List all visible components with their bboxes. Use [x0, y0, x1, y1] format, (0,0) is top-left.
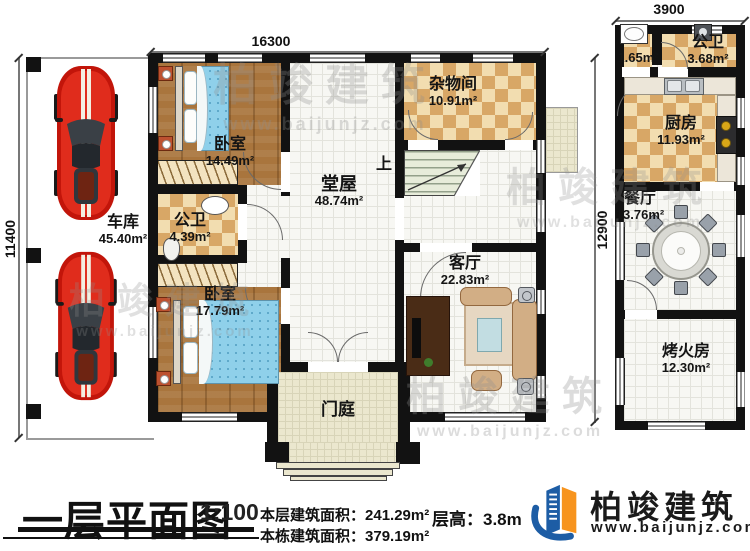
dining-chair: [674, 205, 688, 219]
garage-boundary: [26, 57, 153, 59]
column: [26, 57, 41, 72]
nightstand: [158, 136, 173, 151]
room-name: 杂物间: [408, 76, 498, 94]
room-area: 3.68m²: [677, 52, 739, 67]
room-label-fire-room: 烤火房 12.30m²: [643, 343, 729, 375]
floor-height-value: 3.8m: [483, 510, 522, 529]
room-area: 4.39m²: [158, 230, 222, 245]
dining-chair: [674, 281, 688, 295]
window: [736, 372, 745, 407]
room-name: 烤火房: [643, 343, 729, 361]
room-label-bath-main: 公卫 4.39m²: [158, 212, 222, 244]
room-name: 门庭: [308, 400, 368, 419]
dimension-left: 11400: [2, 204, 18, 274]
dimension-top-main: 16300: [231, 33, 311, 49]
title-underline-thin: [3, 537, 259, 539]
room-name: 堂屋: [301, 174, 377, 194]
column: [26, 404, 41, 419]
window: [736, 98, 745, 128]
room-name: 车库: [92, 214, 154, 232]
room-area: 45.40m²: [92, 232, 154, 247]
room-name: 客厅: [428, 255, 502, 273]
window: [218, 53, 262, 63]
floor-height-label: 层高：: [432, 510, 483, 529]
window: [310, 53, 365, 63]
window: [736, 157, 745, 185]
window: [648, 421, 705, 430]
sofa-main: [512, 299, 537, 381]
wall: [148, 185, 247, 194]
porch-step: [276, 462, 400, 469]
nightstand: [156, 371, 171, 386]
car-bottom: [54, 250, 118, 402]
tv: [412, 318, 421, 358]
room-name: 公卫: [677, 34, 739, 52]
brand-website: www.baijunjz.com: [591, 519, 750, 536]
coffee-table: [477, 318, 502, 352]
sofa-seat: [471, 370, 502, 391]
window: [536, 140, 546, 173]
room-area: 12.30m²: [643, 361, 729, 376]
bed-headboard: [175, 66, 183, 151]
building-area-line: 本栋建筑面积：379.19m²: [260, 525, 429, 546]
watermark-url: www.baijunjz.com: [370, 422, 650, 442]
dimension-line: [615, 20, 745, 22]
stairs-direction-arrow: [404, 150, 480, 196]
window: [182, 412, 237, 422]
room-label-bedroom2: 卧室 17.79m²: [186, 286, 254, 318]
kitchen-sink-basin: [667, 80, 682, 92]
dining-chair: [712, 243, 726, 257]
wall: [148, 255, 247, 263]
stove-burner: [721, 121, 731, 131]
window: [445, 412, 525, 422]
dimension-line: [150, 51, 545, 53]
dining-table-center: [677, 247, 685, 255]
porch-step: [283, 469, 393, 476]
floor-area-value: 241.29m²: [365, 507, 429, 524]
stove-burner: [721, 138, 731, 148]
door-opening: [408, 140, 438, 150]
porch-post: [396, 442, 420, 464]
porch-post: [265, 442, 289, 462]
room-name: 卧室: [196, 136, 264, 154]
window: [148, 307, 158, 358]
room-label-porch: 门庭: [308, 400, 368, 419]
room-area: 17.79m²: [186, 304, 254, 319]
column: [26, 248, 41, 263]
wall: [536, 53, 546, 422]
room-name: 卧室: [186, 286, 254, 304]
window: [736, 215, 745, 257]
room-label-bedroom1: 卧室 14.49m²: [196, 136, 264, 168]
room-area: 22.83m²: [428, 273, 502, 288]
end-table: [517, 378, 534, 395]
room-name: 餐厅: [604, 190, 676, 208]
window: [148, 87, 158, 133]
room-label-dining: 餐厅 13.76m²: [604, 190, 676, 222]
dimension-top-right: 3900: [634, 1, 704, 17]
window: [615, 222, 625, 280]
nightstand: [156, 297, 171, 312]
room-label-hall: 堂屋 48.74m²: [301, 174, 377, 209]
room-label-living: 客厅 22.83m²: [428, 255, 502, 287]
bed-headboard: [173, 300, 181, 384]
floor-area-line: 本层建筑面积：241.29m²: [260, 504, 429, 525]
room-area: 1.65m²: [610, 51, 666, 66]
room-area: 11.93m²: [640, 133, 722, 148]
building-area-label: 本栋建筑面积：: [260, 528, 365, 545]
room-name: 厨房: [640, 115, 722, 133]
porch-floor: [289, 442, 396, 462]
window: [536, 200, 546, 232]
door-opening: [505, 140, 533, 150]
title-underline-thick: [18, 527, 254, 532]
car-top: [54, 64, 118, 222]
room-area: 48.74m²: [301, 194, 377, 209]
floor-area-label: 本层建筑面积：: [260, 507, 365, 524]
window: [411, 53, 440, 63]
sink: [624, 27, 644, 41]
bedroom2-wardrobe: [157, 263, 238, 287]
window: [536, 376, 546, 398]
kitchen-sink-basin: [685, 80, 700, 92]
room-area: 13.76m²: [604, 208, 676, 223]
door-opening: [281, 152, 290, 192]
room-label-kitchen: 厨房 11.93m²: [640, 115, 722, 147]
room-label-storage: 杂物间 10.91m²: [408, 76, 498, 108]
room-label-washroom: 1.65m²: [610, 51, 666, 66]
window: [163, 53, 205, 63]
dimension-line: [18, 57, 20, 438]
room-area: 10.91m²: [408, 94, 498, 109]
door-opening: [308, 362, 368, 372]
door-opening: [622, 67, 650, 77]
door-opening: [281, 288, 290, 324]
room-label-bath2: 公卫 3.68m²: [677, 34, 739, 66]
window: [473, 53, 513, 63]
door-opening: [700, 182, 734, 191]
floor-plan: 16300 3900 11400 12900: [0, 0, 750, 551]
plan-scale: 1:100: [200, 499, 259, 526]
brand-logo-icon: [528, 476, 586, 546]
garage-boundary: [26, 438, 154, 440]
plant: [424, 358, 433, 367]
window: [615, 358, 625, 405]
sofa-loveseat: [460, 287, 512, 306]
pillow: [184, 71, 197, 105]
pillow: [183, 342, 198, 374]
terrace: [545, 107, 578, 173]
end-table: [518, 287, 535, 303]
building-area-value: 379.19m²: [365, 528, 429, 545]
window: [536, 290, 546, 314]
room-area: 14.49m²: [196, 154, 264, 169]
stairs-up-text: 上: [376, 156, 392, 173]
stairs-up-label: 上: [372, 156, 396, 174]
floor-height-line: 层高：3.8m: [432, 505, 522, 530]
door-opening: [395, 198, 404, 240]
porch-step: [290, 476, 387, 481]
room-name: 公卫: [158, 212, 222, 230]
door-opening: [420, 243, 472, 252]
door-opening: [238, 204, 247, 240]
door-opening: [625, 310, 657, 319]
dining-chair: [636, 243, 650, 257]
nightstand: [158, 66, 173, 81]
room-label-garage: 车库 45.40m²: [92, 214, 154, 246]
